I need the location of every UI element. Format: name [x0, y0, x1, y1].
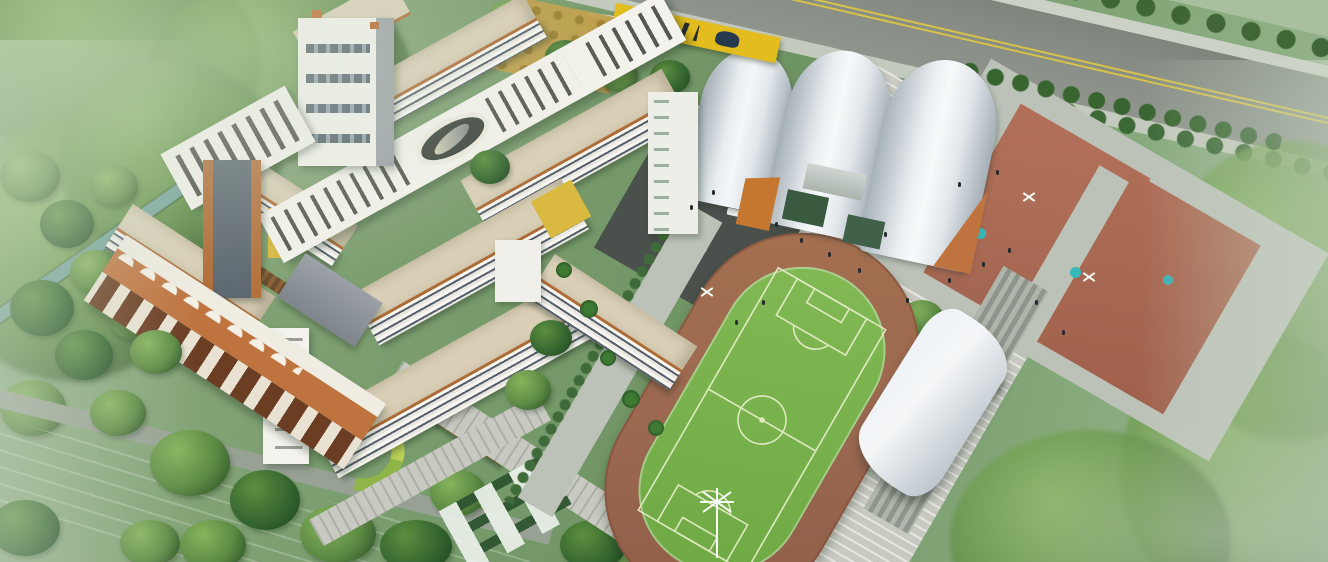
person-figure [948, 278, 951, 283]
tree [120, 520, 180, 562]
tree [150, 430, 230, 496]
campus-aerial-rendering [0, 0, 1328, 562]
palm-tree [600, 350, 616, 366]
rooftop-equipment [312, 10, 322, 18]
admin-tower [298, 18, 394, 166]
palm-tree [648, 420, 664, 436]
tower-window-band [306, 104, 370, 113]
tree [90, 165, 138, 207]
person-figure [712, 190, 715, 195]
palm-tree [622, 390, 640, 408]
court-umbrella-cyan [1070, 267, 1081, 278]
palm-tree [556, 262, 572, 278]
person-figure [1035, 300, 1038, 305]
person-figure [906, 298, 909, 303]
tower-side-shade [376, 18, 394, 166]
person-figure [884, 232, 887, 237]
person-figure [1062, 330, 1065, 335]
person-figure [800, 238, 803, 243]
tower-window-band [306, 44, 370, 53]
palm-tree [580, 300, 598, 318]
tree [55, 330, 113, 380]
stair-tower-white [648, 92, 698, 234]
tree [40, 200, 94, 248]
person-figure [828, 252, 831, 257]
tree [505, 370, 551, 410]
person-figure [858, 268, 861, 273]
person-figure [690, 205, 693, 210]
tree [0, 500, 60, 556]
tree [380, 520, 452, 562]
floodlight [700, 488, 734, 558]
tree [230, 470, 300, 530]
tree [90, 390, 146, 436]
tree [530, 320, 572, 356]
rooftop-equipment [370, 22, 379, 29]
tower-window-band [306, 134, 370, 143]
plaza-lamp [1022, 190, 1036, 204]
tree [10, 280, 74, 336]
person-figure [958, 182, 961, 187]
tower-window-band [306, 74, 370, 83]
stair-tower-white [495, 240, 541, 302]
person-figure [996, 170, 999, 175]
tree [0, 150, 60, 202]
plaza-lamp [700, 285, 714, 299]
person-figure [762, 300, 765, 305]
atrium-glass [431, 119, 473, 158]
person-figure [735, 320, 738, 325]
tree [180, 520, 246, 562]
tree [130, 330, 182, 374]
person-figure [982, 262, 985, 267]
stair-tower-orange [203, 160, 261, 298]
plaza-lamp [1082, 270, 1096, 284]
court-umbrella-cyan [1163, 275, 1173, 285]
person-figure [1008, 248, 1011, 253]
person-figure [775, 222, 778, 227]
tree [470, 150, 510, 184]
